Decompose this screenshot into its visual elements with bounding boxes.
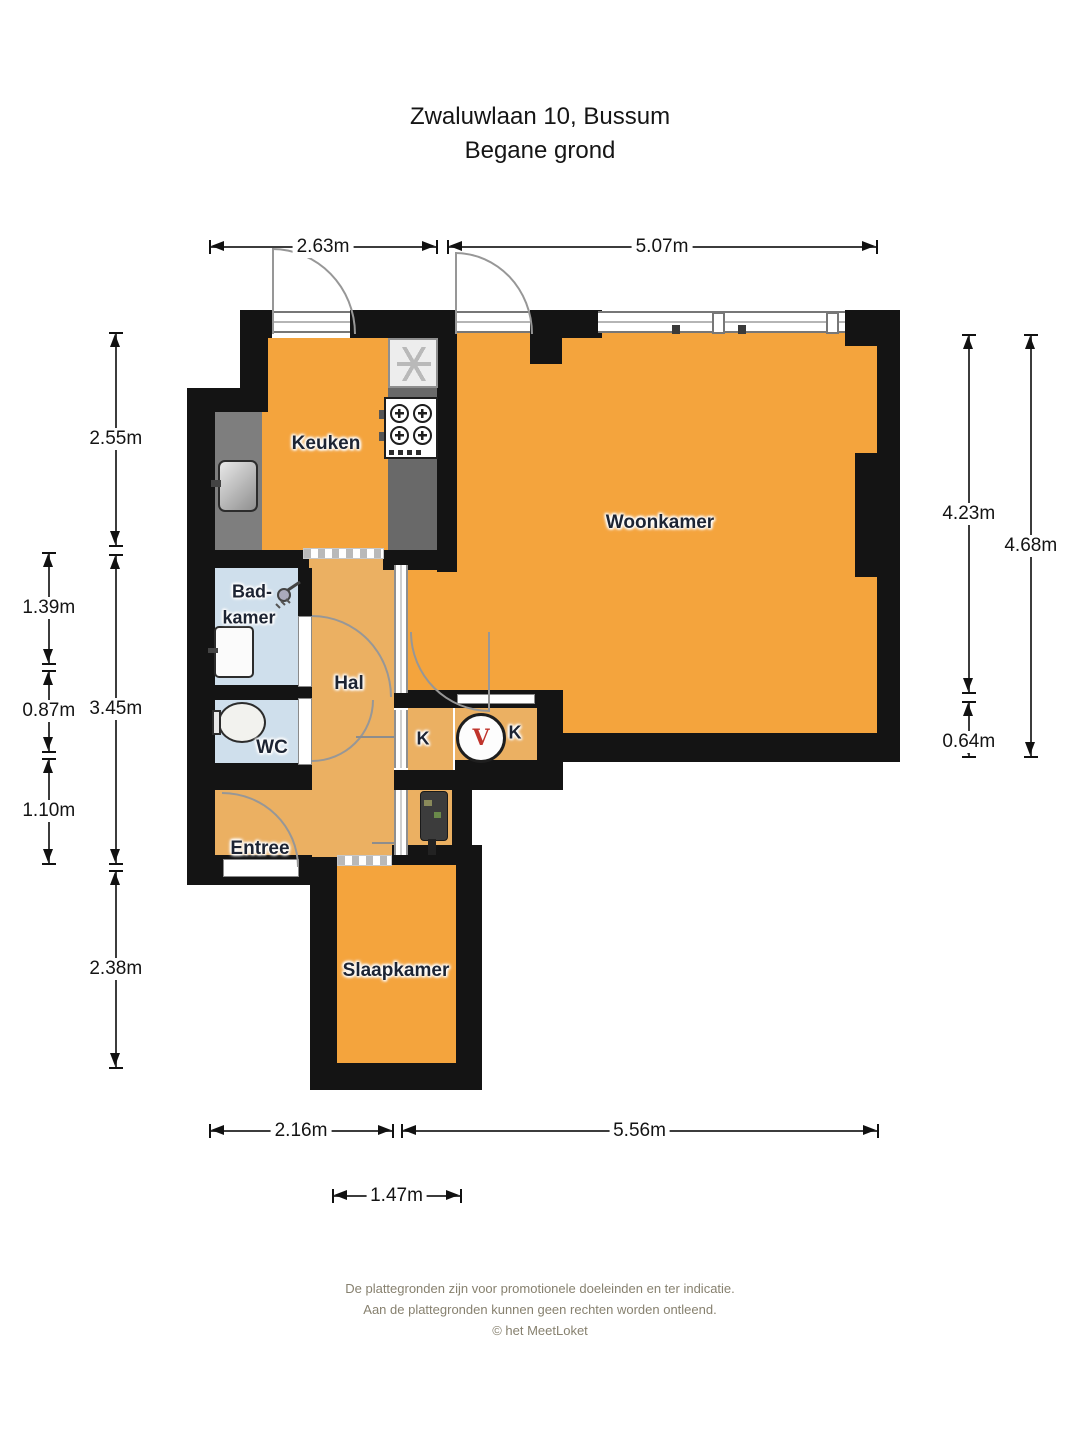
wall-closet-divider	[394, 770, 457, 790]
burner-icon	[413, 426, 432, 445]
wall-slaapkamer-right	[456, 845, 482, 1090]
threshold-hal-slaapkamer	[337, 855, 392, 866]
dimension-label: 1.10m	[18, 800, 79, 822]
dimension-label: 3.45m	[85, 698, 146, 720]
kitchen-faucet-icon	[211, 480, 221, 487]
wall-left	[187, 405, 215, 885]
threshold-keuken-hal	[303, 548, 384, 559]
door-arc-woonkamer-balcony	[455, 252, 533, 334]
burner-icon	[390, 426, 409, 445]
glass-partition-hal-mid	[394, 710, 408, 768]
dimension-label: 2.38m	[85, 958, 146, 980]
floorplan-page: Zwaluwlaan 10, Bussum Begane grond	[0, 0, 1080, 1440]
door-arc-keuken-balcony	[272, 248, 356, 334]
dimension-bottom-woonkamer: 5.56m	[402, 1130, 877, 1132]
kitchen-sink	[218, 460, 258, 512]
boiler-detail	[434, 812, 441, 818]
wall-keuken-woonkamer	[437, 332, 457, 572]
page-title-address: Zwaluwlaan 10, Bussum	[410, 103, 670, 131]
label-closet-right: K	[509, 723, 522, 744]
wall-badkamer-wc	[187, 685, 312, 700]
bathroom-faucet-icon	[208, 648, 218, 653]
dimension-top-keuken: 2.63m	[210, 246, 436, 248]
ventilation-unit-icon: V	[456, 713, 506, 763]
footer-copyright: © het MeetLoket	[492, 1323, 588, 1338]
dimension-right-woonkamer: 4.23m	[968, 335, 970, 692]
dimension-bottom-slaapkamer: 1.47m	[333, 1195, 460, 1197]
wall-closet-bottom	[455, 760, 563, 790]
window-mullion	[712, 312, 725, 334]
dimension-label: 5.56m	[609, 1120, 670, 1142]
dimension-left-badkamer: 1.39m	[48, 553, 50, 663]
window-connector	[738, 325, 746, 334]
dimension-label: 1.47m	[366, 1185, 427, 1207]
label-entree: Entree	[230, 838, 289, 860]
window-connector	[672, 325, 680, 334]
label-hal: Hal	[334, 673, 364, 695]
dimension-label: 2.16m	[271, 1120, 332, 1142]
bathroom-sink	[214, 626, 254, 678]
footer-disclaimer-1: De plattegronden zijn voor promotionele …	[345, 1281, 735, 1296]
wall-pier-woonkamer	[530, 338, 562, 364]
wall-top-c	[530, 310, 602, 338]
dimension-left-hal: 3.45m	[115, 555, 117, 863]
dimension-label: 0.87m	[18, 700, 79, 722]
label-badkamer-2: kamer	[222, 608, 275, 629]
door-badkamer-opening	[298, 616, 312, 687]
dimension-label: 4.68m	[1000, 535, 1061, 557]
dimension-top-woonkamer: 5.07m	[448, 246, 876, 248]
label-badkamer-1: Bad-	[232, 582, 272, 603]
boiler-pipe	[428, 839, 436, 855]
dimension-left-slaapkamer: 2.38m	[115, 871, 117, 1067]
asterisk-icon	[397, 347, 431, 381]
dimension-left-entree: 1.10m	[48, 759, 50, 863]
burner-icon	[390, 404, 409, 423]
dimension-label: 4.23m	[938, 503, 999, 525]
door-wc-opening	[298, 698, 312, 765]
stove-handle	[379, 432, 384, 441]
label-keuken: Keuken	[292, 433, 361, 455]
glass-partition-hal-upper	[394, 565, 408, 693]
wall-slaapkamer-bottom	[310, 1063, 482, 1090]
dimension-label: 5.07m	[632, 236, 693, 258]
footer-disclaimer-2: Aan de plattegronden kunnen geen rechten…	[363, 1302, 716, 1317]
dimension-left-wc: 0.87m	[48, 671, 50, 751]
boiler-detail	[424, 800, 432, 806]
wall-woonkamer-bottom	[563, 733, 900, 762]
label-closet-left: K	[417, 729, 430, 750]
wall-right-notch	[855, 453, 900, 577]
dimension-left-keuken: 2.55m	[115, 333, 117, 545]
stove-handle	[379, 410, 384, 419]
dimension-label: 2.55m	[85, 428, 146, 450]
burner-icon	[413, 404, 432, 423]
dimension-right-notch: 0.64m	[968, 702, 970, 756]
label-slaapkamer: Slaapkamer	[343, 960, 450, 982]
toilet-tank	[212, 710, 221, 735]
wall-wc-entree	[187, 763, 312, 790]
fridge	[388, 338, 438, 388]
page-title-floor: Begane grond	[465, 137, 616, 165]
dimension-label: 1.39m	[18, 597, 79, 619]
dimension-right-total: 4.68m	[1030, 335, 1032, 756]
section-tick	[372, 842, 394, 844]
ventilation-glyph: V	[472, 725, 489, 751]
label-woonkamer: Woonkamer	[606, 512, 714, 534]
section-tick	[356, 736, 394, 738]
window-mullion-end	[826, 312, 839, 334]
shower-icon	[272, 578, 306, 612]
dimension-label: 0.64m	[938, 731, 999, 753]
wall-slaapkamer-left	[310, 857, 337, 1090]
dimension-bottom-entree: 2.16m	[210, 1130, 392, 1132]
dimension-label: 2.63m	[293, 236, 354, 258]
stove-knobs	[389, 450, 421, 455]
label-wc: WC	[256, 737, 288, 759]
wall-keuken-badkamer	[187, 550, 309, 568]
stove	[384, 397, 438, 459]
closet-left-floor	[408, 706, 453, 772]
glass-partition-hal-lower	[394, 790, 408, 855]
